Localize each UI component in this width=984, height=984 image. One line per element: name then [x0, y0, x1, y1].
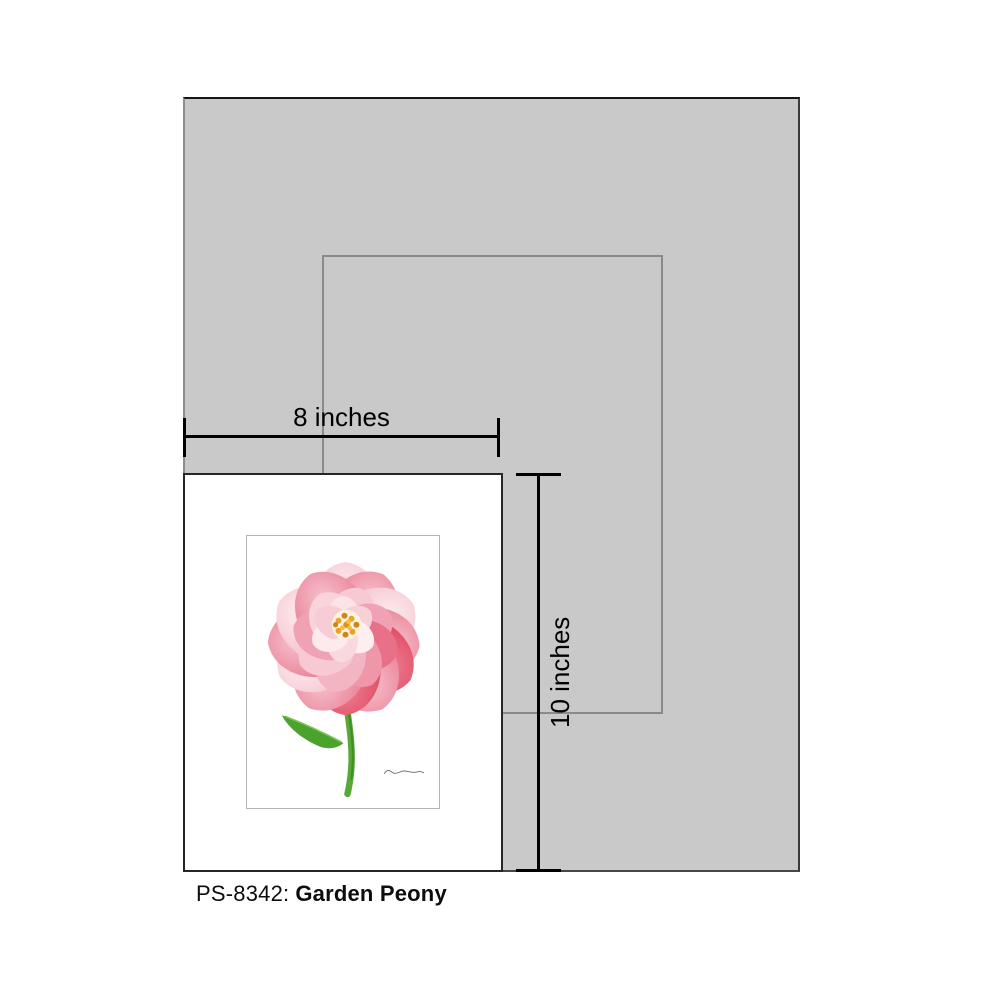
stamens — [332, 610, 362, 640]
peony-bloom — [261, 557, 430, 727]
height-dimension-label: 10 inches — [545, 473, 576, 872]
leaf — [282, 715, 344, 748]
peony-illustration — [247, 536, 439, 808]
width-dimension-label: 8 inches — [183, 402, 500, 433]
caption-title: Garden Peony — [295, 881, 447, 906]
width-dimension-line — [183, 435, 500, 438]
caption: PS-8342:Garden Peony — [196, 881, 447, 907]
height-dimension-line — [537, 473, 540, 872]
print-8x10 — [183, 473, 503, 872]
caption-product-code: PS-8342: — [196, 881, 289, 906]
size-comparison-diagram: 8 inches 10 inches PS-8342:Garden Peony — [0, 0, 984, 984]
stem — [346, 705, 352, 794]
peony-artwork — [246, 535, 440, 809]
artist-signature — [384, 770, 424, 774]
